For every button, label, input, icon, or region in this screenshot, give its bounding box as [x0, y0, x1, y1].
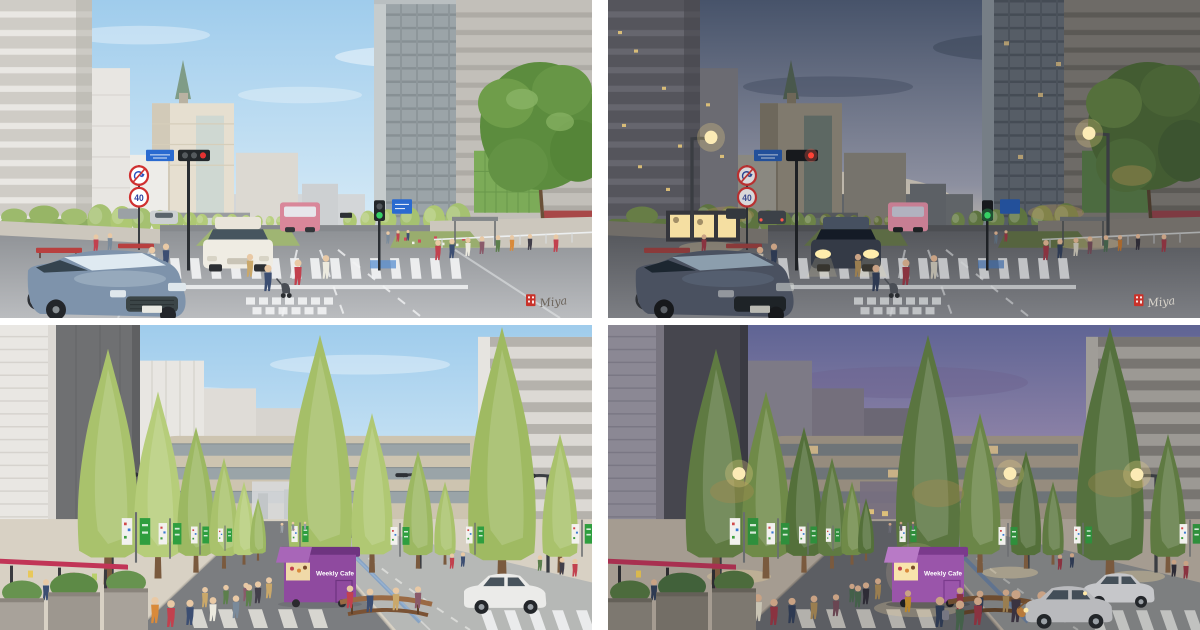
red-bench — [118, 244, 154, 249]
bus-shelter-roof — [452, 217, 498, 221]
speed-limit-value: 40 — [742, 193, 752, 203]
kiosk-label: Weekly Cafe — [924, 571, 963, 578]
planter-box — [0, 598, 44, 630]
panel-promenade-dusk: Weekly Cafe — [608, 325, 1200, 630]
direction-sign — [392, 199, 412, 213]
panel-intersection-dusk: 40 — [608, 0, 1200, 318]
speed-limit-value: 40 — [134, 193, 144, 203]
panel-promenade-day: Weekly Cafe — [0, 325, 592, 630]
red-bench — [36, 248, 82, 253]
pink-van — [280, 202, 320, 232]
backpackers — [936, 597, 983, 630]
pink-van — [888, 202, 928, 232]
kiosk-label: Weekly Cafe — [316, 571, 355, 578]
stop-line — [148, 285, 468, 289]
kiosk-awning — [276, 547, 312, 563]
kiosk-awning — [884, 547, 920, 563]
seal-stamp — [526, 294, 536, 306]
panel-intersection-day: 40 — [0, 0, 592, 318]
seal-stamp — [1134, 294, 1144, 306]
rendering-grid: 40 — [0, 0, 1200, 630]
bike-lane-mark — [370, 260, 396, 268]
